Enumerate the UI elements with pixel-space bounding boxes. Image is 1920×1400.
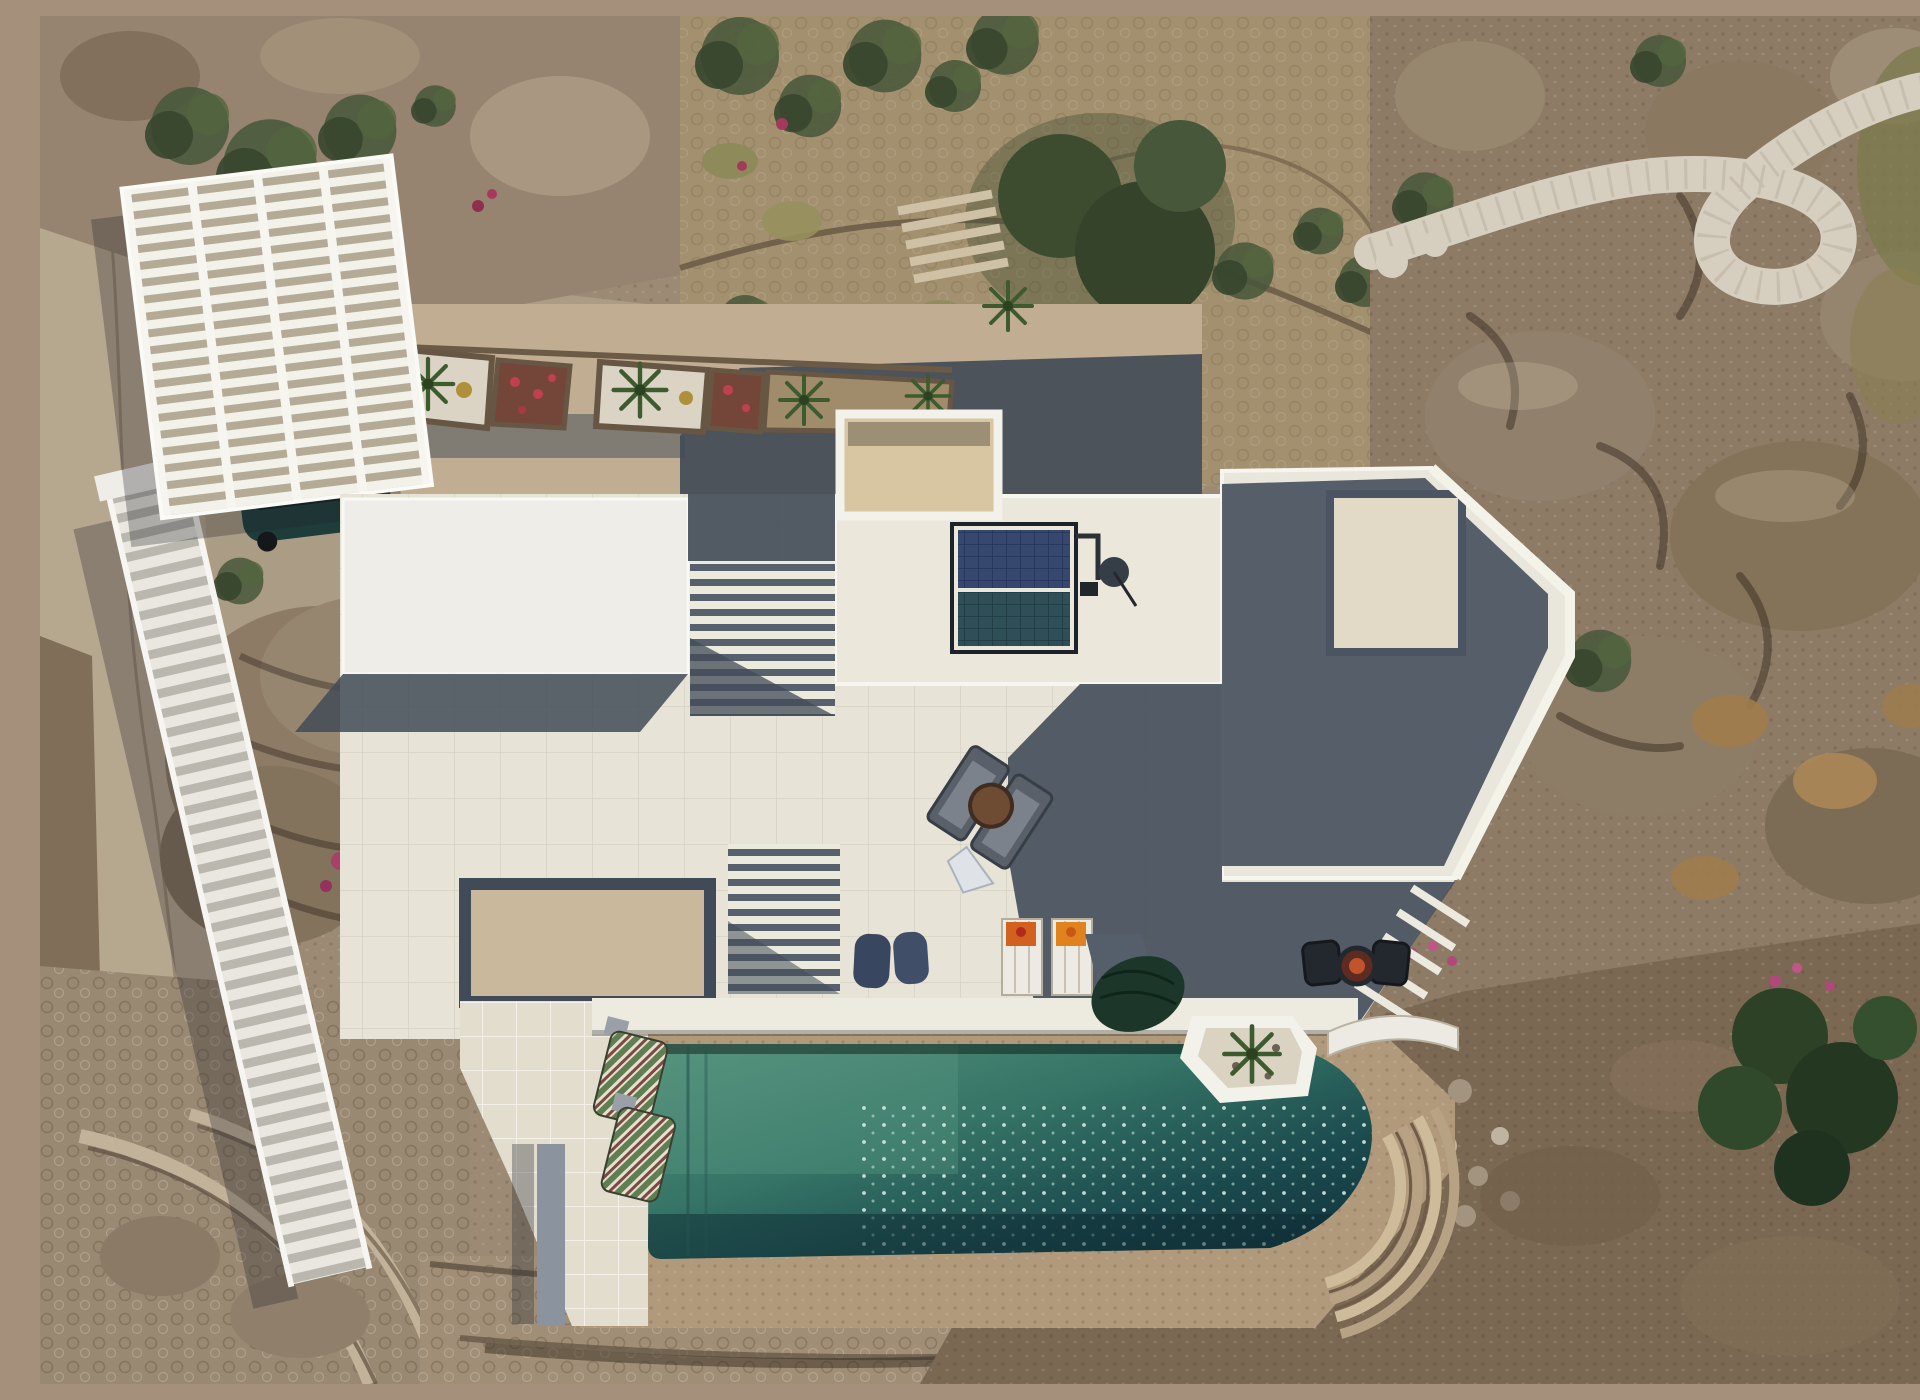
stair-pergola-upper <box>690 561 835 716</box>
bean-bag <box>853 933 892 989</box>
sunken-court <box>465 884 710 1002</box>
deck-wall <box>537 1144 565 1326</box>
aerial-photograph: Top-down aerial drone photograph of a wh… <box>40 16 1920 1384</box>
aerial-photo-canvas <box>40 16 1920 1384</box>
west-wing-roof <box>343 499 688 674</box>
east-roof-inset <box>1330 494 1462 652</box>
entry-atrium <box>840 414 998 516</box>
fire-pit-set <box>1302 940 1410 986</box>
carport-pergola <box>88 155 435 547</box>
entrance-courtyard <box>380 282 1202 496</box>
bean-bag <box>892 931 930 985</box>
stair-pergola-lower <box>728 844 840 994</box>
